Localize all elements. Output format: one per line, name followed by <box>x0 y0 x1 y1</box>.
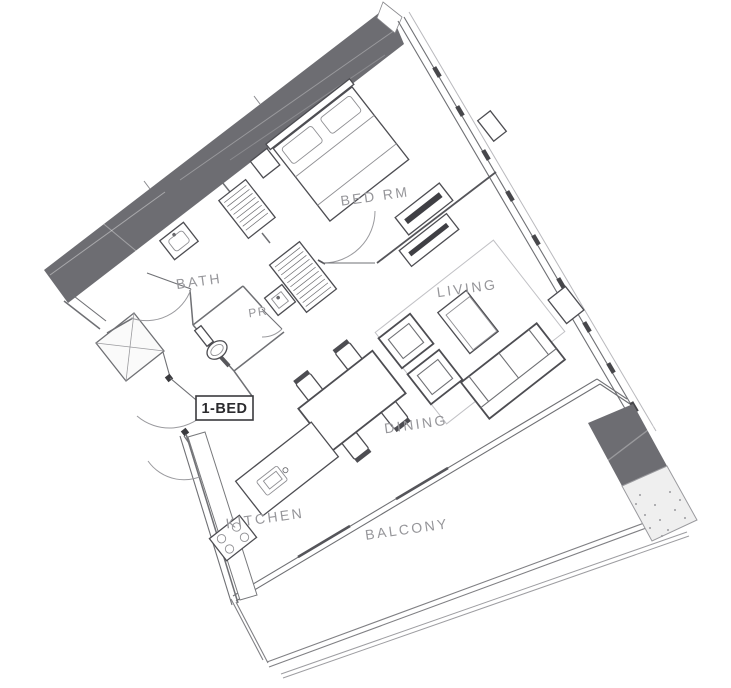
room-label-bath: BATH <box>175 270 223 292</box>
sliding-door-panel <box>396 468 448 499</box>
room-label-balcony: BALCONY <box>364 515 450 543</box>
shaft <box>96 313 164 381</box>
unit-label: 1-BED <box>201 401 247 417</box>
balcony-railing <box>231 512 689 678</box>
side-table <box>548 286 584 323</box>
powder-room-fixtures <box>195 326 231 366</box>
sliding-door-panel <box>298 526 350 557</box>
kitchen-island <box>236 422 339 516</box>
floor-plan-page: BED RM BATH PR LIVING DINING KITCHEN BAL… <box>0 0 731 688</box>
toilet-tank <box>195 326 214 347</box>
unit-label-box: 1-BED <box>196 396 253 420</box>
coffee-table <box>438 290 498 353</box>
room-label-powder-room: PR <box>247 304 268 321</box>
floor-plan-drawing: BED RM BATH PR LIVING DINING KITCHEN BAL… <box>0 0 731 688</box>
bath-sink <box>160 222 198 259</box>
